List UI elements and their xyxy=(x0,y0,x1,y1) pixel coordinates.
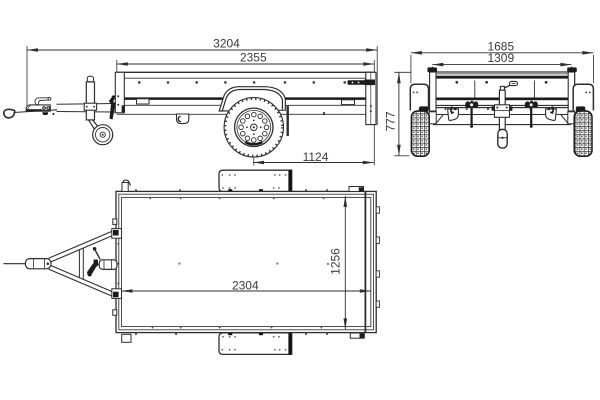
svg-text:1309: 1309 xyxy=(487,51,514,65)
svg-text:1124: 1124 xyxy=(303,150,329,164)
svg-text:2304: 2304 xyxy=(232,279,259,293)
svg-text:777: 777 xyxy=(384,111,398,131)
svg-text:1256: 1256 xyxy=(328,248,342,275)
svg-text:2355: 2355 xyxy=(240,51,267,65)
svg-text:3204: 3204 xyxy=(213,37,240,51)
